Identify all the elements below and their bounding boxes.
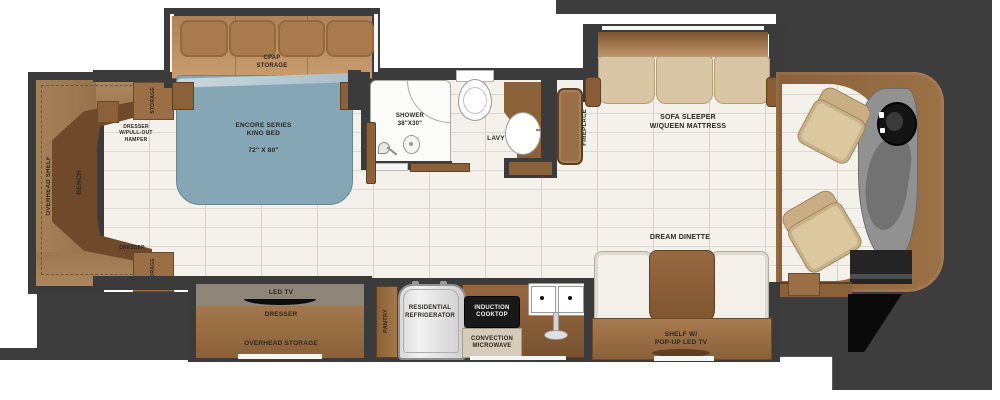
dresser-hamper-label: DRESSER W/PULL-OUT HAMPER <box>98 124 174 143</box>
bench-label: BENCH <box>76 170 83 195</box>
led-tv-label: LED TV <box>242 289 320 297</box>
dresser-label: DRESSER <box>242 311 320 319</box>
vanity-sink <box>505 112 541 155</box>
induction-label: INDUCTION COOKTOP <box>474 305 509 320</box>
shower-label: SHOWER 38"X30" <box>375 113 445 128</box>
sofa-label: SOFA SLEEPER W/QUEEN MATTRESS <box>618 114 758 132</box>
sofa-armrest-left <box>585 77 601 107</box>
dream-dinette-label: DREAM DINETTE <box>634 234 726 243</box>
steering-wheel-icon <box>879 112 884 118</box>
induction-cooktop: INDUCTION COOKTOP <box>464 296 520 328</box>
kitchen-slideout-sill <box>470 356 566 360</box>
floor-plan-canvas: OVERHEAD SHELF BENCH STORAGE STORAGE DRE… <box>0 0 1000 400</box>
bed-size-label: 72" X 80" <box>196 147 331 155</box>
wall-top-left <box>93 70 173 82</box>
refrigerator-hinge <box>412 281 419 286</box>
sofa-back <box>598 32 768 57</box>
convection-microwave: CONVECTION MICROWAVE <box>462 328 522 358</box>
refrigerator-label: RESIDENTIAL REFRIGERATOR <box>398 305 462 320</box>
overhead-shelf-label: OVERHEAD SHELF <box>46 156 52 216</box>
pillow <box>180 20 228 57</box>
faucet-icon <box>544 330 568 340</box>
bath-door <box>366 122 376 184</box>
fireplace-label: FIREPLACE <box>582 109 588 146</box>
sofa-slideout-sill <box>602 26 764 30</box>
wall-bottom-left <box>93 276 193 290</box>
steering-wheel-icon <box>886 112 903 131</box>
refrigerator-hinge <box>440 281 447 286</box>
body-mass-bottom-strip <box>0 348 40 360</box>
pillow <box>278 20 325 57</box>
cpap-storage-label: CPAP STORAGE <box>212 55 332 70</box>
dream-dinette-table <box>649 250 715 324</box>
king-bed <box>176 75 353 205</box>
towel-bar <box>410 163 470 172</box>
sink-drain-icon <box>568 296 572 300</box>
steering-wheel-icon <box>880 128 885 133</box>
dresser-rear-label: DRESSER <box>102 245 162 251</box>
pillow <box>229 20 276 57</box>
bed-slideout-sill-right <box>374 14 378 72</box>
sofa-cushion <box>656 56 713 104</box>
dinette-slideout-sill <box>654 356 714 361</box>
bed-name-label: ENCORE SERIES KING BED <box>196 122 331 138</box>
shower-drain-icon <box>409 142 413 146</box>
pantry-label: PANTRY <box>383 309 389 333</box>
entry-cabinet <box>788 273 820 296</box>
tv-slideout-sill <box>238 354 322 359</box>
vanity-base-cabinet <box>509 162 552 175</box>
refrigerator-inner-line <box>403 289 459 353</box>
nightstand-left <box>172 82 194 110</box>
microwave-label: CONVECTION MICROWAVE <box>471 336 513 351</box>
sofa-cushion <box>598 56 655 104</box>
sofa-cushion <box>714 56 770 104</box>
body-mass-bottom-left <box>37 292 188 360</box>
wall-bedroom-bath <box>348 70 361 110</box>
shelf-popup-tv-label: SHELF W/ POP-UP LED TV <box>625 331 737 347</box>
toilet-seat <box>463 87 487 114</box>
step-well-edge <box>850 274 912 279</box>
hamper-box <box>97 101 119 123</box>
pillow <box>326 20 374 57</box>
bath-shelf <box>372 163 408 171</box>
sink-basin <box>531 286 556 313</box>
overhead-storage-label: OVERHEAD STORAGE <box>232 340 330 348</box>
sink-drain-icon <box>540 296 544 300</box>
storage-top-label: STORAGE <box>150 87 156 114</box>
